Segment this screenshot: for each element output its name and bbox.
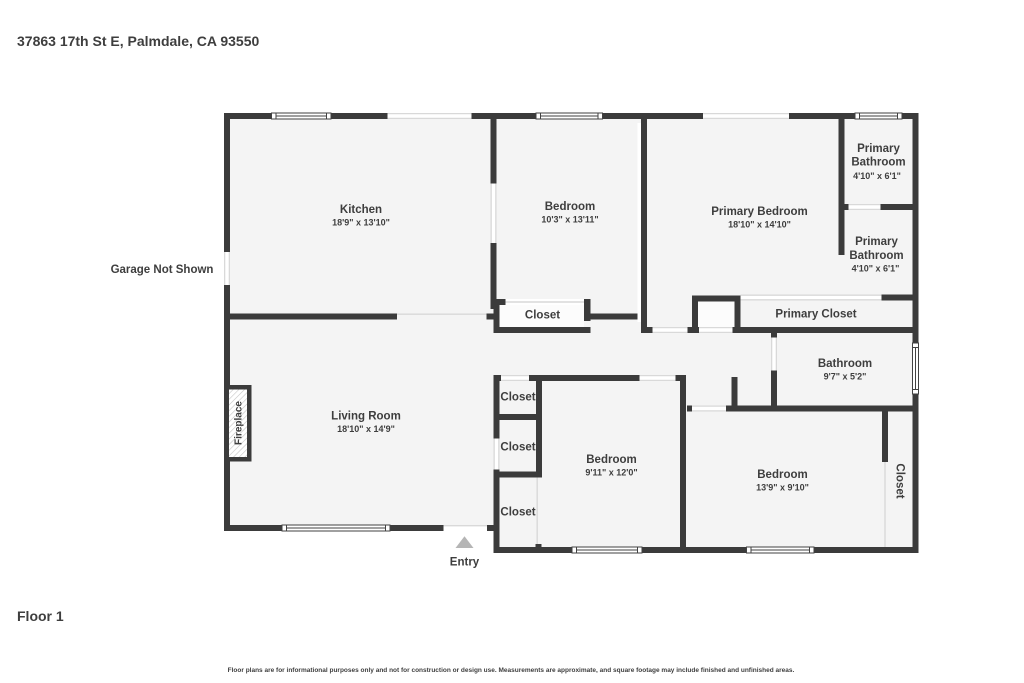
svg-text:Bathroom: Bathroom — [851, 157, 905, 169]
svg-text:Primary: Primary — [855, 236, 898, 248]
svg-text:4'10" x 6'1": 4'10" x 6'1" — [852, 264, 900, 274]
svg-text:Primary Closet: Primary Closet — [775, 309, 856, 321]
svg-text:Bedroom: Bedroom — [586, 454, 636, 466]
svg-text:18'10" x 14'10": 18'10" x 14'10" — [728, 220, 791, 230]
svg-text:Living Room: Living Room — [331, 411, 401, 423]
svg-text:Closet: Closet — [500, 392, 535, 404]
svg-text:Floor plans are for informatio: Floor plans are for informational purpos… — [228, 667, 795, 674]
svg-text:9'11" x 12'0": 9'11" x 12'0" — [585, 468, 637, 478]
svg-text:Closet: Closet — [525, 310, 560, 322]
svg-text:Closet: Closet — [500, 507, 535, 519]
svg-text:Kitchen: Kitchen — [340, 204, 382, 216]
svg-text:Bathroom: Bathroom — [849, 250, 903, 262]
svg-text:37863 17th St E, Palmdale, CA: 37863 17th St E, Palmdale, CA 93550 — [17, 33, 259, 49]
svg-text:Closet: Closet — [894, 463, 906, 498]
svg-text:Primary: Primary — [857, 143, 900, 155]
svg-text:Closet: Closet — [500, 442, 535, 454]
svg-text:Bathroom: Bathroom — [818, 358, 872, 370]
svg-text:18'9" x 13'10": 18'9" x 13'10" — [332, 218, 390, 228]
svg-text:Bedroom: Bedroom — [545, 201, 595, 213]
svg-text:Entry: Entry — [450, 557, 480, 569]
svg-text:Bedroom: Bedroom — [757, 469, 807, 481]
svg-text:9'7" x 5'2": 9'7" x 5'2" — [824, 372, 867, 382]
svg-text:Garage Not Shown: Garage Not Shown — [111, 264, 214, 276]
svg-text:Floor 1: Floor 1 — [17, 608, 64, 624]
svg-text:10'3" x 13'11": 10'3" x 13'11" — [541, 215, 598, 225]
svg-text:Fireplace: Fireplace — [234, 401, 245, 445]
svg-text:4'10" x 6'1": 4'10" x 6'1" — [853, 171, 901, 181]
svg-text:13'9" x 9'10": 13'9" x 9'10" — [756, 483, 809, 493]
svg-text:Primary Bedroom: Primary Bedroom — [711, 206, 808, 218]
svg-text:18'10" x 14'9": 18'10" x 14'9" — [337, 424, 395, 434]
